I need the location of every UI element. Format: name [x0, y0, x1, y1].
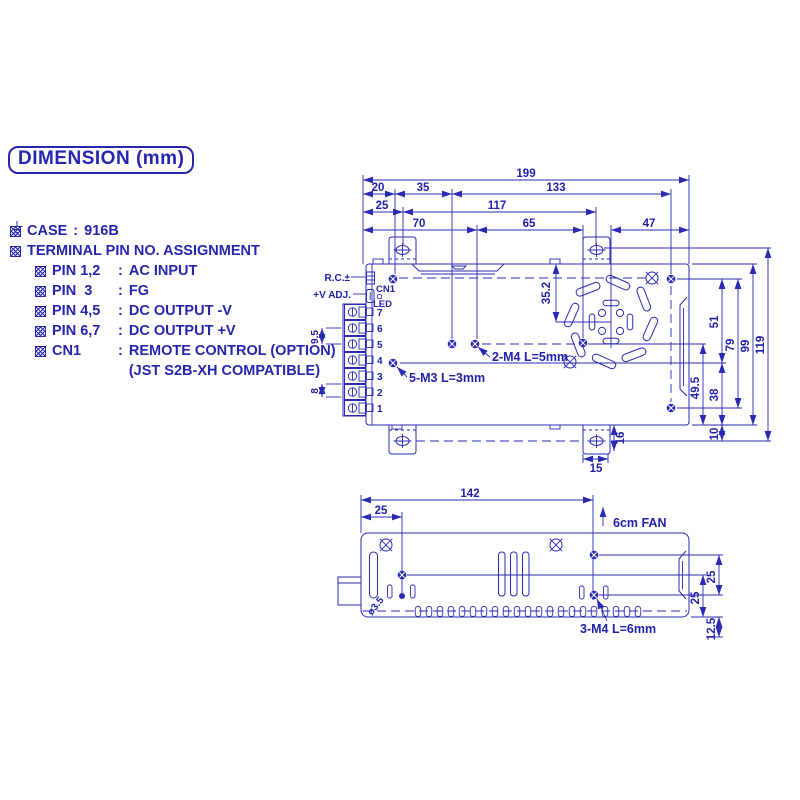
dim-199: 199: [516, 168, 535, 180]
dim-25-outer: 25: [706, 570, 718, 583]
dim-9-5: 9.5: [310, 330, 321, 344]
dim-70: 70: [413, 218, 426, 230]
thread-notes: 5-M3 L=3mm 2-M4 L=5mm: [397, 347, 568, 385]
dim-20: 20: [372, 182, 385, 194]
note-5-m3: 5-M3 L=3mm: [409, 371, 485, 385]
dim-25-inner: 25: [690, 591, 702, 604]
dim-49-5: 49.5: [690, 376, 702, 399]
dim-65: 65: [523, 218, 536, 230]
dim-142: 142: [460, 488, 479, 500]
terminal-block-profile: [338, 577, 361, 605]
dim-119: 119: [755, 336, 767, 355]
screws: [389, 272, 676, 413]
dim-47: 47: [643, 218, 656, 230]
led-label: LED: [373, 299, 392, 310]
dim-25: 25: [376, 200, 389, 212]
dim-35: 35: [417, 182, 430, 194]
louver-vents: [415, 607, 641, 617]
cn1-label: CN1: [376, 284, 396, 295]
dim-38: 38: [709, 388, 721, 401]
dim-8: 8: [310, 388, 321, 394]
pin-number-1: 1: [377, 404, 383, 415]
pin-number-6: 6: [377, 324, 383, 335]
thread-notes: ø3.5 3-M4 L=6mm: [366, 595, 657, 636]
top-view: 199 20 35 133 25 117 70 65 47 35.2: [310, 168, 771, 475]
dim-16: 16: [615, 432, 627, 445]
pin-number-3: 3: [377, 372, 383, 383]
dim-35-2: 35.2: [541, 282, 553, 304]
vadj-label: +V ADJ.: [313, 290, 351, 301]
pin-number-5: 5: [377, 340, 383, 351]
note-2-m4: 2-M4 L=5mm: [492, 350, 568, 364]
pin-number-2: 2: [377, 388, 383, 399]
dimensions: 199 20 35 133 25 117 70 65 47 35.2: [310, 168, 768, 475]
fan-note: 6cm FAN: [613, 516, 667, 530]
dim-25-left: 25: [375, 505, 388, 517]
side-view: 142 25 6cm FAN 25 25 12.5: [338, 488, 723, 640]
dim-117: 117: [488, 200, 507, 212]
dim-10: 10: [709, 428, 721, 441]
pin-number-4: 4: [377, 356, 383, 367]
dimension-drawing-page: DIMENSION (mm) CASE : 916B TERMINAL PIN …: [0, 0, 800, 800]
mounting-tabs: [389, 237, 610, 454]
hole-diameter-label: ø3.5: [366, 595, 387, 618]
dim-12-5: 12.5: [706, 617, 718, 640]
note-3-m4: 3-M4 L=6mm: [580, 622, 656, 636]
technical-drawing: 199 20 35 133 25 117 70 65 47 35.2: [0, 0, 800, 800]
rc-label: R.C.±: [325, 273, 351, 284]
screws: [380, 539, 599, 600]
dim-99: 99: [740, 340, 752, 353]
dim-15: 15: [590, 463, 603, 475]
dim-133: 133: [546, 182, 565, 194]
dim-79: 79: [725, 339, 737, 352]
terminal-block: 7 6 5 4 3 2 1: [343, 304, 383, 416]
dim-51: 51: [709, 315, 721, 328]
